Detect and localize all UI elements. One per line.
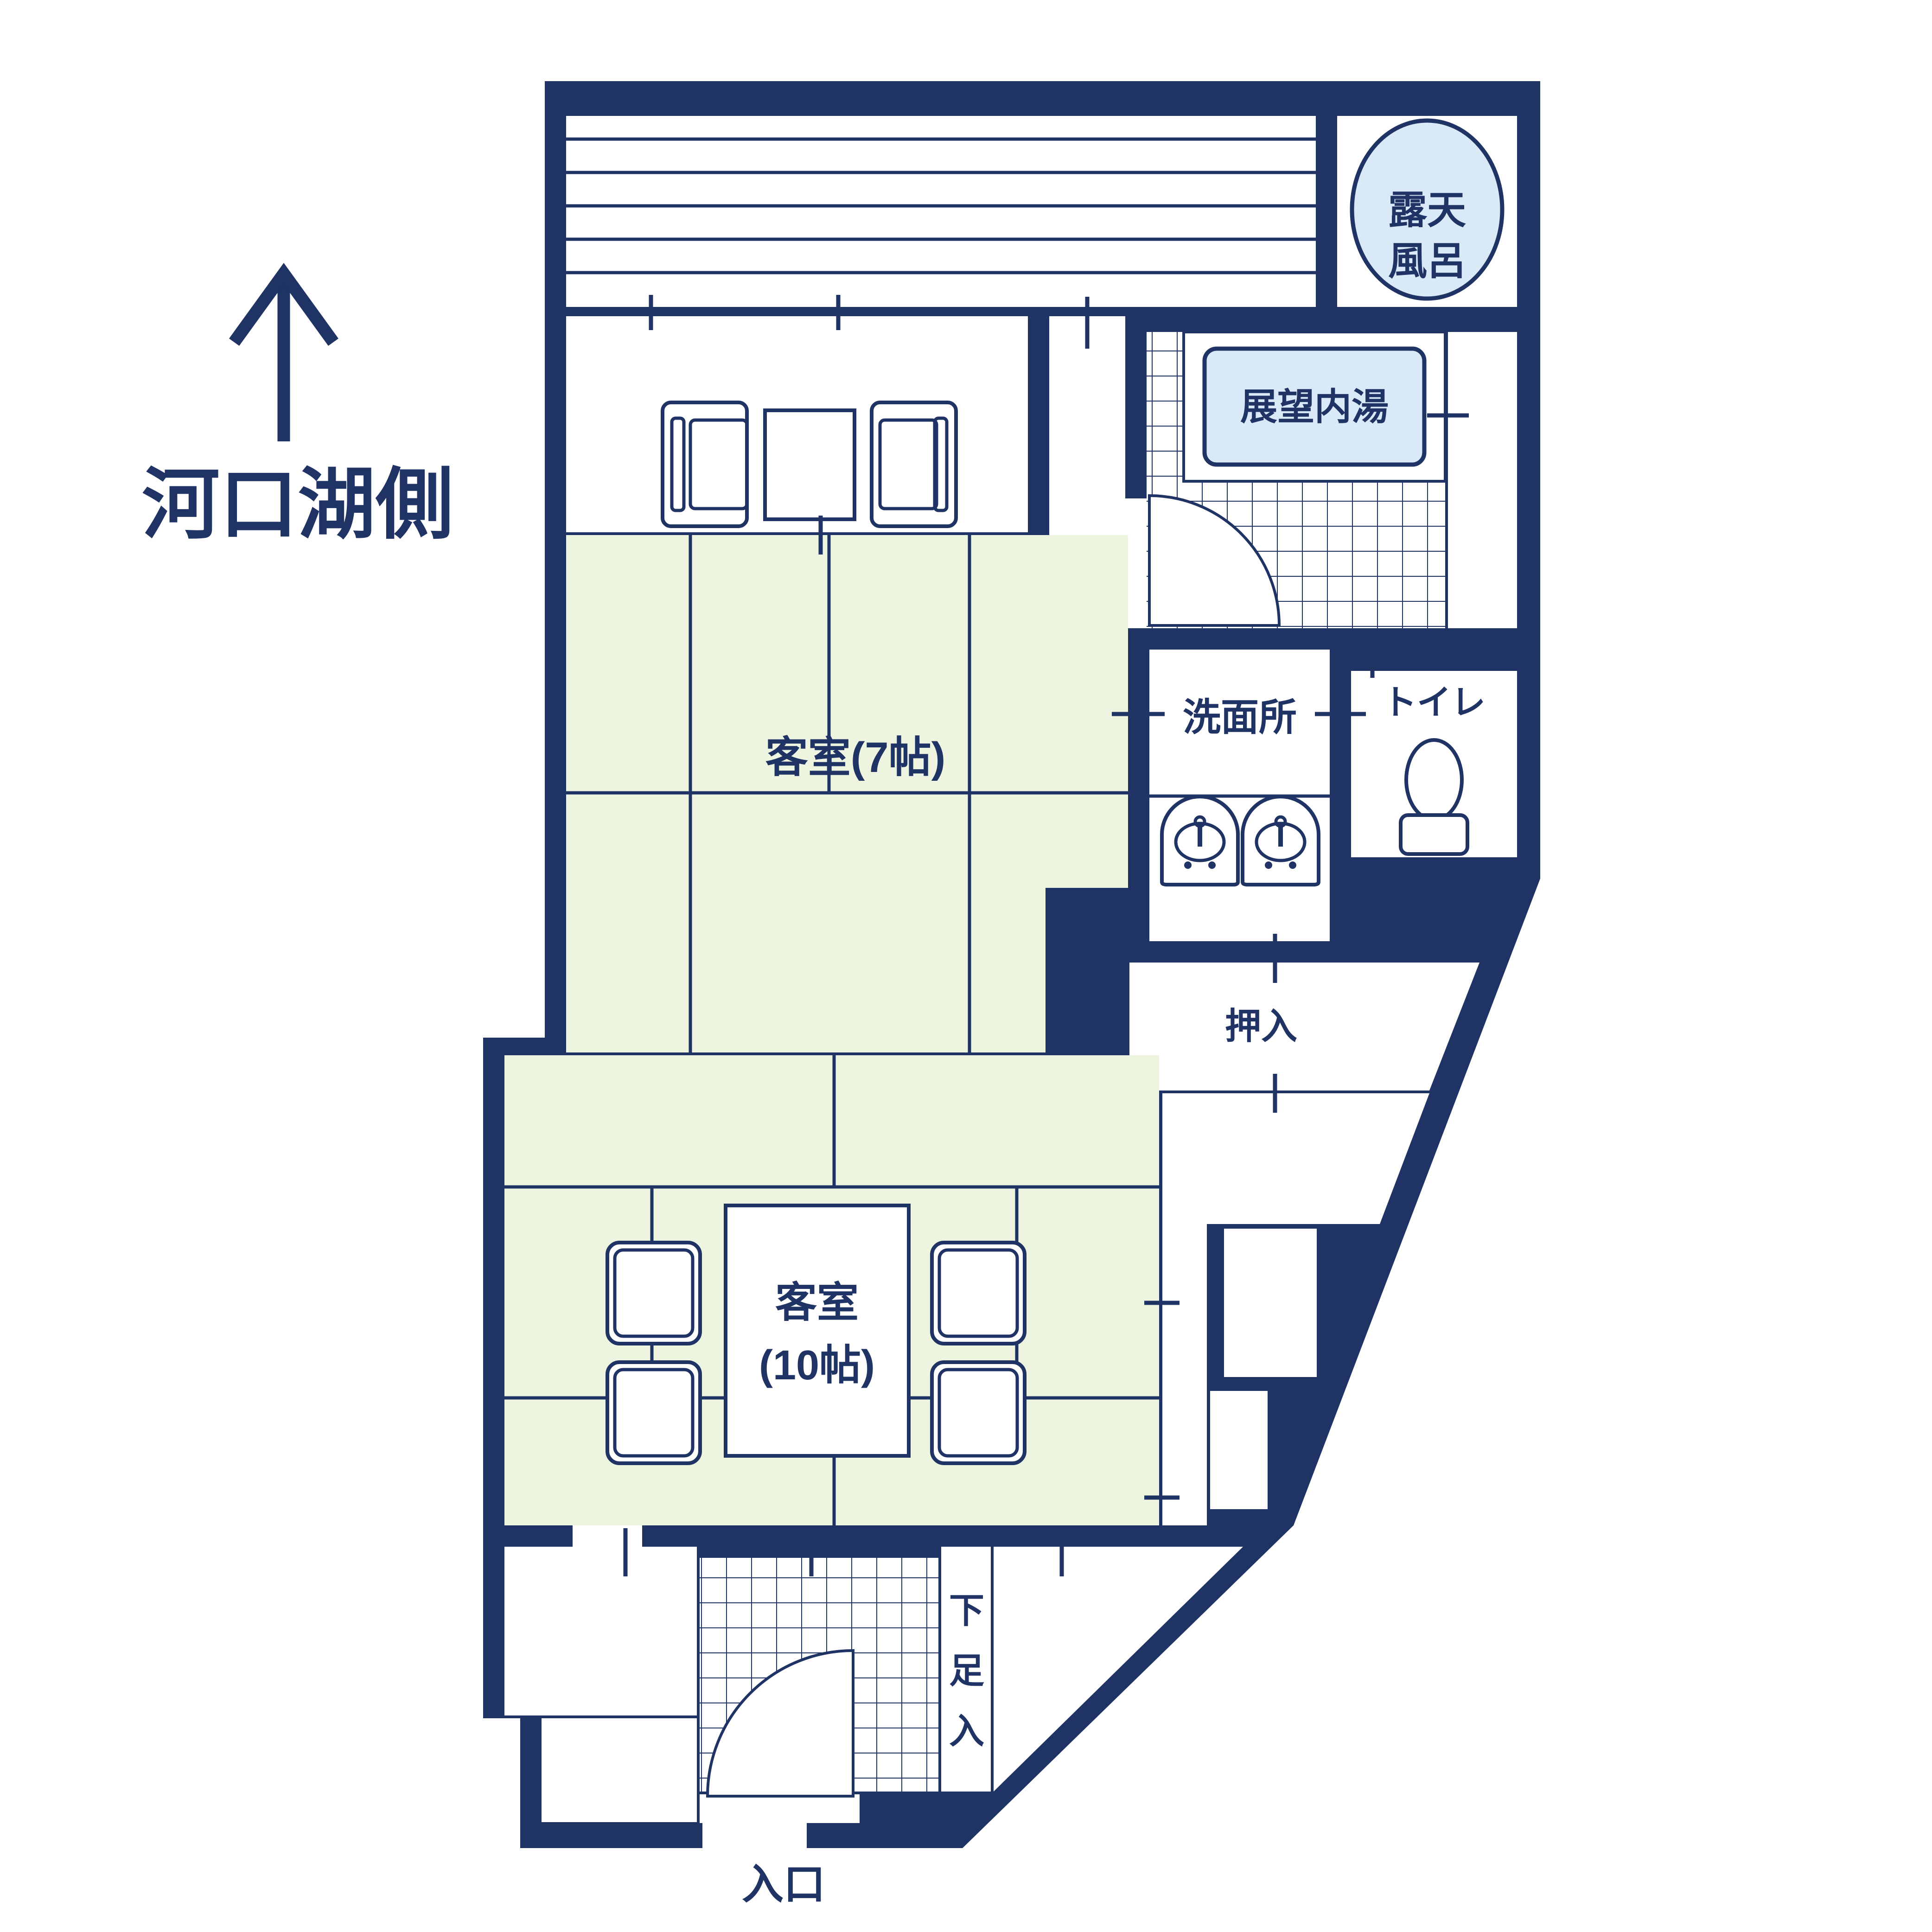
bath-window-ledge	[1448, 332, 1517, 628]
shoe-label-char-1: 下	[949, 1591, 984, 1631]
sink-icon-right	[1243, 797, 1319, 885]
alcove-corridor	[1162, 1093, 1207, 1525]
rotenburo-room: 露天 風呂	[1337, 116, 1517, 307]
side-table-icon	[765, 410, 854, 519]
entry-side-area	[994, 1547, 1243, 1792]
floorplan-canvas: 河口湖側 露天 風呂	[0, 0, 1932, 1932]
guest-room-10: 客室 (10帖)	[504, 1055, 1159, 1525]
lake-side-label: 河口湖側	[142, 461, 453, 548]
washroom-label: 洗面所	[1183, 696, 1297, 739]
zabuton-icon-lr	[932, 1362, 1025, 1463]
guest-room-10-label-1: 客室	[775, 1280, 859, 1326]
rotenburo-label-2: 風呂	[1388, 239, 1466, 283]
rotenburo-label-1: 露天	[1388, 188, 1466, 232]
entrance-opening	[702, 1823, 807, 1848]
shoe-label-char-3: 入	[949, 1712, 984, 1751]
zabuton-icon-ul	[607, 1243, 700, 1344]
vestibule	[700, 1794, 860, 1823]
toilet-label: トイレ	[1383, 683, 1486, 721]
armchair-right-icon	[872, 402, 956, 526]
anteroom	[504, 1547, 697, 1715]
shoe-label-char-2: 足	[949, 1651, 984, 1691]
entrance-label: 入口	[742, 1862, 825, 1908]
closet-label: 押入	[1225, 1006, 1297, 1046]
low-table-icon	[726, 1205, 909, 1456]
zabuton-icon-ur	[932, 1243, 1025, 1344]
bath-door-opening	[1125, 498, 1147, 628]
armchair-left-icon	[663, 402, 747, 526]
indoor-bath: 展望内湯	[1147, 332, 1517, 628]
washroom: 洗面所	[1149, 650, 1330, 941]
toilet-icon	[1401, 740, 1467, 854]
sink-icon-left	[1162, 797, 1238, 885]
guest-room-10-label-2: (10帖)	[759, 1342, 875, 1389]
indoor-bath-label: 展望内湯	[1240, 386, 1389, 427]
doorway-to-anteroom	[573, 1525, 642, 1547]
toilet-room: トイレ	[1351, 671, 1517, 857]
zabuton-icon-ll	[607, 1362, 700, 1463]
guest-room-7-label: 客室(7帖)	[765, 734, 945, 781]
floorplan-page: 河口湖側 露天 風呂	[0, 0, 1932, 1932]
alcove-lower	[1210, 1391, 1268, 1509]
closet-oshiire: 押入	[1129, 963, 1479, 1090]
compass-north-arrow	[234, 274, 333, 441]
corridor	[1049, 316, 1125, 535]
guest-room-7: 客室(7帖)	[566, 535, 1128, 1052]
balcony	[566, 116, 1316, 307]
lower-storage	[542, 1718, 697, 1822]
shoe-storage: 下 足 入	[941, 1547, 991, 1792]
sitting-area	[566, 316, 1028, 532]
alcove-upper	[1224, 1229, 1317, 1377]
